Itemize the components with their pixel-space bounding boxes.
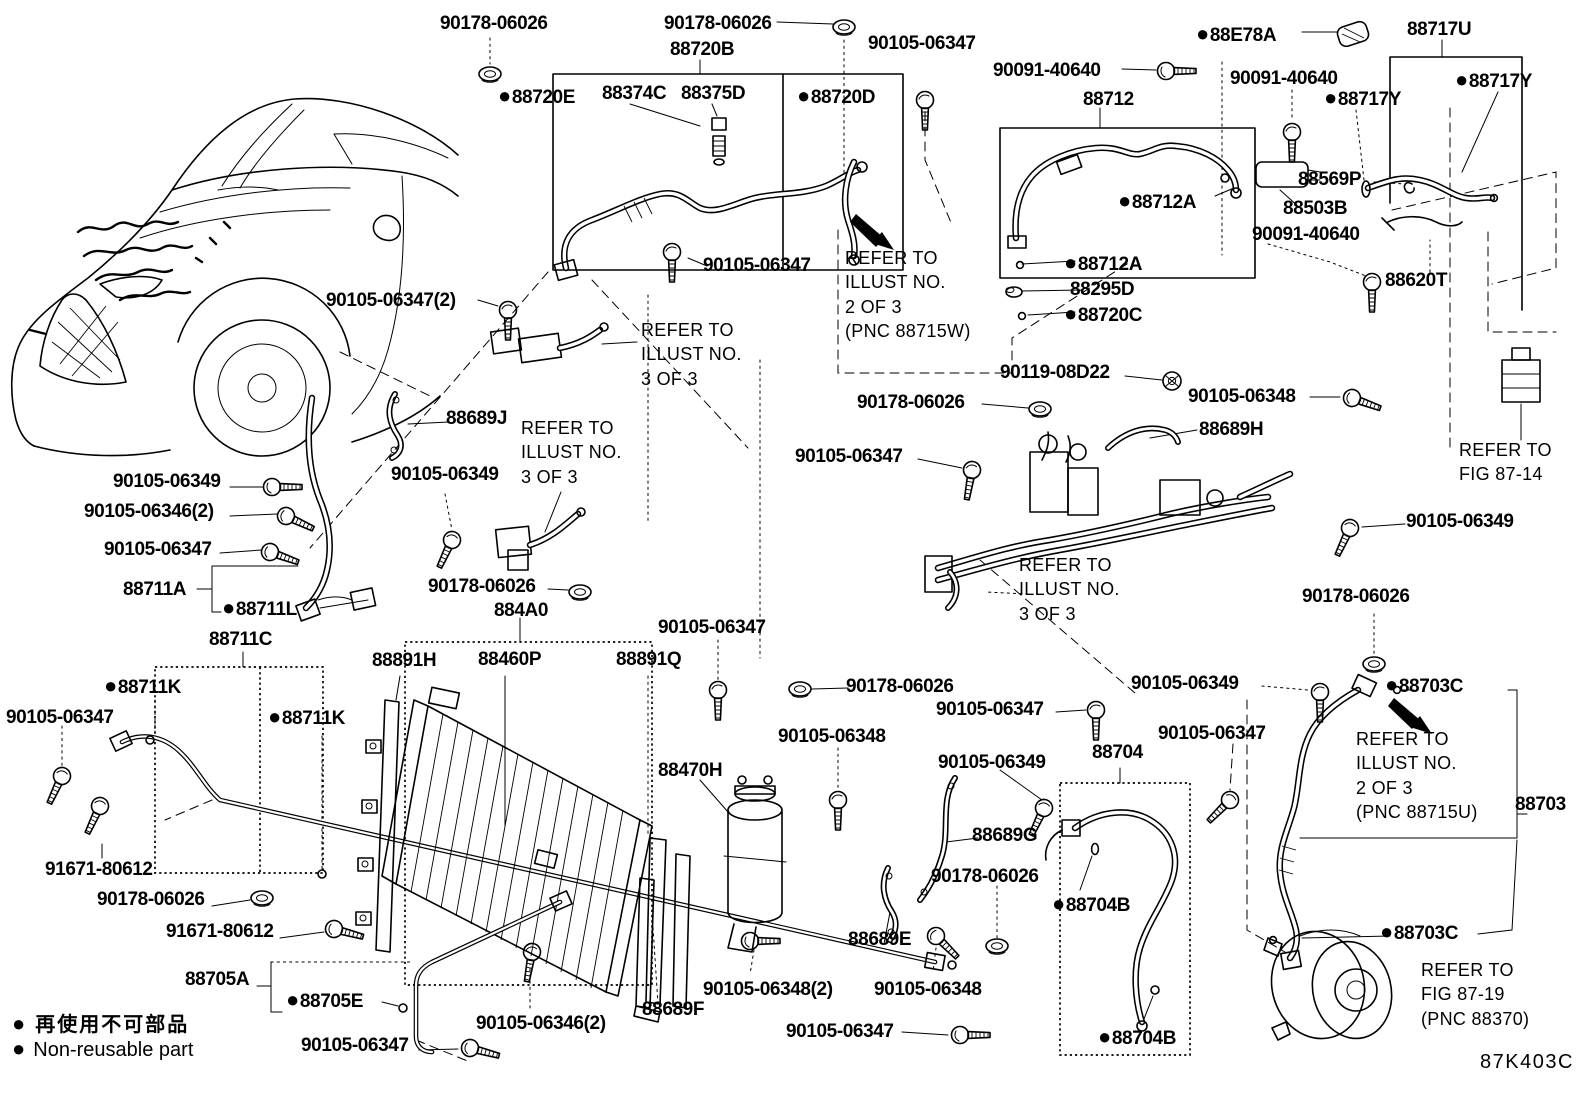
part-label-88705a-67: 88705A xyxy=(185,970,249,990)
part-label-90105-06347-75: 90105-06347 xyxy=(786,1022,894,1042)
expansion-valve-icon xyxy=(1502,348,1540,402)
part-label-90178-06026-1: 90178-06026 xyxy=(664,14,772,34)
bracket-88891h xyxy=(376,700,399,952)
part-label-90105-06349-27: 90105-06349 xyxy=(113,472,221,492)
part-label-90105-06349-52: 90105-06349 xyxy=(938,753,1046,773)
part-label-90105-06348-2-72: 90105-06348(2) xyxy=(703,980,833,1000)
parts-diagram-page: 90178-0602690178-0602690105-0634788720B●… xyxy=(0,0,1592,1099)
part-label-90105-06347-47: 90105-06347 xyxy=(658,618,766,638)
note-refer-to-82: REFER TO FIG 87-19 (PNC 88370) xyxy=(1421,958,1529,1031)
part-label-88720e-4: ●88720E xyxy=(498,84,575,108)
part-label-90091-40640-12: 90091-40640 xyxy=(1230,69,1338,89)
part-label-88470h-48: 88470H xyxy=(658,761,722,781)
part-label-88503b-17: 88503B xyxy=(1283,199,1347,219)
part-label-88295d-21: 88295D xyxy=(1070,280,1134,300)
part-label-90119-08d22-39: 90119-08D22 xyxy=(1000,363,1110,383)
non-reusable-dot-icon: ● xyxy=(1196,21,1209,46)
non-reusable-dot-icon: ● xyxy=(1052,891,1065,916)
part-label-90178-06026-30: 90178-06026 xyxy=(428,577,536,597)
part-label-91671-80612-64: 91671-80612 xyxy=(45,860,153,880)
part-label-90105-06348-49: 90105-06348 xyxy=(778,727,886,747)
part-label-90105-06347-69: 90105-06347 xyxy=(301,1036,409,1056)
non-reusable-dot-icon: ● xyxy=(222,595,235,620)
part-label-88711l-33: ●88711L xyxy=(222,596,297,620)
part-label-88374c-5: 88374C xyxy=(602,84,666,104)
non-reusable-dot-icon: ● xyxy=(1455,67,1468,92)
part-label-90178-06026-0: 90178-06026 xyxy=(440,14,548,34)
non-reusable-dot-icon: ● xyxy=(12,1036,25,1061)
non-reusable-dot-icon: ● xyxy=(1324,85,1337,110)
non-reusable-dot-icon: ● xyxy=(104,673,117,698)
legend-non-reusable-jp: ●再使用不可部品 xyxy=(12,1008,189,1037)
solenoid-part-lower xyxy=(496,508,585,570)
part-label-88720b-3: 88720B xyxy=(670,40,734,60)
part-label-90178-06026-54: 90178-06026 xyxy=(931,867,1039,887)
part-label-88720c-22: ●88720C xyxy=(1064,302,1142,326)
part-label-90105-06349-58: 90105-06349 xyxy=(1131,674,1239,694)
part-label-88704b-57: ●88704B xyxy=(1098,1025,1176,1049)
part-label-90091-40640-11: 90091-40640 xyxy=(993,61,1101,81)
part-label-90105-06347-37: 90105-06347 xyxy=(6,708,114,728)
non-reusable-dot-icon: ● xyxy=(498,83,511,108)
part-label-88689h-42: 88689H xyxy=(1199,420,1263,440)
part-label-88689e-74: 88689E xyxy=(848,930,911,950)
part-label-90105-06347-40: 90105-06347 xyxy=(795,447,903,467)
non-reusable-dot-icon: ● xyxy=(286,987,299,1012)
non-reusable-dot-icon: ● xyxy=(797,83,810,108)
part-label-90105-06348-73: 90105-06348 xyxy=(874,980,982,1000)
part-label-88711c-34: 88711C xyxy=(209,630,272,650)
part-label-88375d-6: 88375D xyxy=(681,84,745,104)
part-label-90105-06347-2-24: 90105-06347(2) xyxy=(326,291,456,311)
non-reusable-dot-icon: ● xyxy=(1098,1024,1111,1049)
part-label-88703-62: 88703 xyxy=(1515,795,1566,815)
non-reusable-dot-icon: ● xyxy=(1380,919,1393,944)
non-reusable-dot-icon: ● xyxy=(268,704,281,729)
suction-hose-88704 xyxy=(1046,812,1175,1031)
note-refer-to-81: REFER TO ILLUST NO. 2 OF 3 (PNC 88715U) xyxy=(1356,727,1478,824)
part-label-88704b-56: ●88704B xyxy=(1052,892,1130,916)
non-reusable-dot-icon: ● xyxy=(1064,250,1077,275)
part-label-88460p-45: 88460P xyxy=(478,650,541,670)
note-refer-to-79: REFER TO ILLUST NO. 3 OF 3 xyxy=(1019,553,1120,626)
part-label-88569p-16: 88569P xyxy=(1298,170,1361,190)
part-label-88717y-10: ●88717Y xyxy=(1455,68,1532,92)
condenser-884a0 xyxy=(356,687,690,1022)
part-label-90178-06026-65: 90178-06026 xyxy=(97,890,205,910)
part-label-90105-06347-23: 90105-06347 xyxy=(703,256,811,276)
part-label-90105-06346-2-70: 90105-06346(2) xyxy=(476,1014,606,1034)
part-label-88703c-61: ●88703C xyxy=(1385,673,1463,697)
part-label-88711k-35: ●88711K xyxy=(104,674,181,698)
note-refer-to-80: REFER TO FIG 87-14 xyxy=(1459,438,1552,487)
part-label-90105-06347-2: 90105-06347 xyxy=(868,34,976,54)
part-label-90105-06347-29: 90105-06347 xyxy=(104,540,212,560)
part-label-90105-06346-2-28: 90105-06346(2) xyxy=(84,502,214,522)
part-label-90105-06347-59: 90105-06347 xyxy=(1158,724,1266,744)
part-label-90105-06347-51: 90105-06347 xyxy=(936,700,1044,720)
part-label-88620t-19: 88620T xyxy=(1385,271,1447,291)
part-label-88712-14: 88712 xyxy=(1083,90,1134,110)
part-label-88712a-15: ●88712A xyxy=(1118,189,1196,213)
part-label-88689j-25: 88689J xyxy=(446,409,507,429)
part-label-88705e-68: ●88705E xyxy=(286,988,363,1012)
non-reusable-dot-icon: ● xyxy=(1064,301,1077,326)
part-label-88891q-46: 88891Q xyxy=(616,650,681,670)
part-label-90105-06349-26: 90105-06349 xyxy=(391,465,499,485)
part-label-90105-06348-41: 90105-06348 xyxy=(1188,387,1296,407)
non-reusable-dot-icon: ● xyxy=(1385,672,1398,697)
note-refer-to-76: REFER TO ILLUST NO. 2 OF 3 (PNC 88715W) xyxy=(845,246,971,343)
small-fasteners xyxy=(42,20,1385,1064)
part-label-88891h-44: 88891H xyxy=(372,651,436,671)
non-reusable-dot-icon: ● xyxy=(12,1011,27,1036)
clip-88e78a-icon xyxy=(1336,20,1371,48)
part-label-90091-40640-18: 90091-40640 xyxy=(1252,225,1360,245)
legend-non-reusable-en: ●Non-reusable part xyxy=(12,1036,193,1062)
part-label-88711a-32: 88711A xyxy=(123,580,186,600)
part-label-91671-80612-66: 91671-80612 xyxy=(166,922,274,942)
part-label-88720d-7: ●88720D xyxy=(797,84,875,108)
figure-code: 87K403C xyxy=(1480,1052,1574,1073)
part-label-90178-06026-60: 90178-06026 xyxy=(1302,587,1410,607)
clip-88569p-icon xyxy=(1404,183,1414,193)
part-label-88717u-9: 88717U xyxy=(1407,20,1471,40)
note-refer-to-77: REFER TO ILLUST NO. 3 OF 3 xyxy=(641,318,742,391)
note-refer-to-78: REFER TO ILLUST NO. 3 OF 3 xyxy=(521,416,622,489)
part-label-90105-06349-43: 90105-06349 xyxy=(1406,512,1514,532)
non-reusable-dot-icon: ● xyxy=(1118,188,1131,213)
part-label-88703c-63: ●88703C xyxy=(1380,920,1458,944)
part-label-88689g-53: 88689G xyxy=(972,826,1037,846)
part-label-88e78a-8: ●88E78A xyxy=(1196,22,1276,46)
part-label-90178-06026-50: 90178-06026 xyxy=(846,677,954,697)
part-label-88717y-13: ●88717Y xyxy=(1324,86,1401,110)
part-label-884a0-31: 884A0 xyxy=(494,601,548,621)
part-label-90178-06026-38: 90178-06026 xyxy=(857,393,965,413)
part-label-88704-55: 88704 xyxy=(1092,743,1143,763)
part-label-88711k-36: ●88711K xyxy=(268,705,345,729)
part-label-88689f-71: 88689F xyxy=(642,1000,704,1020)
part-label-88712a-20: ●88712A xyxy=(1064,251,1142,275)
valve-cluster-upper xyxy=(491,323,608,363)
